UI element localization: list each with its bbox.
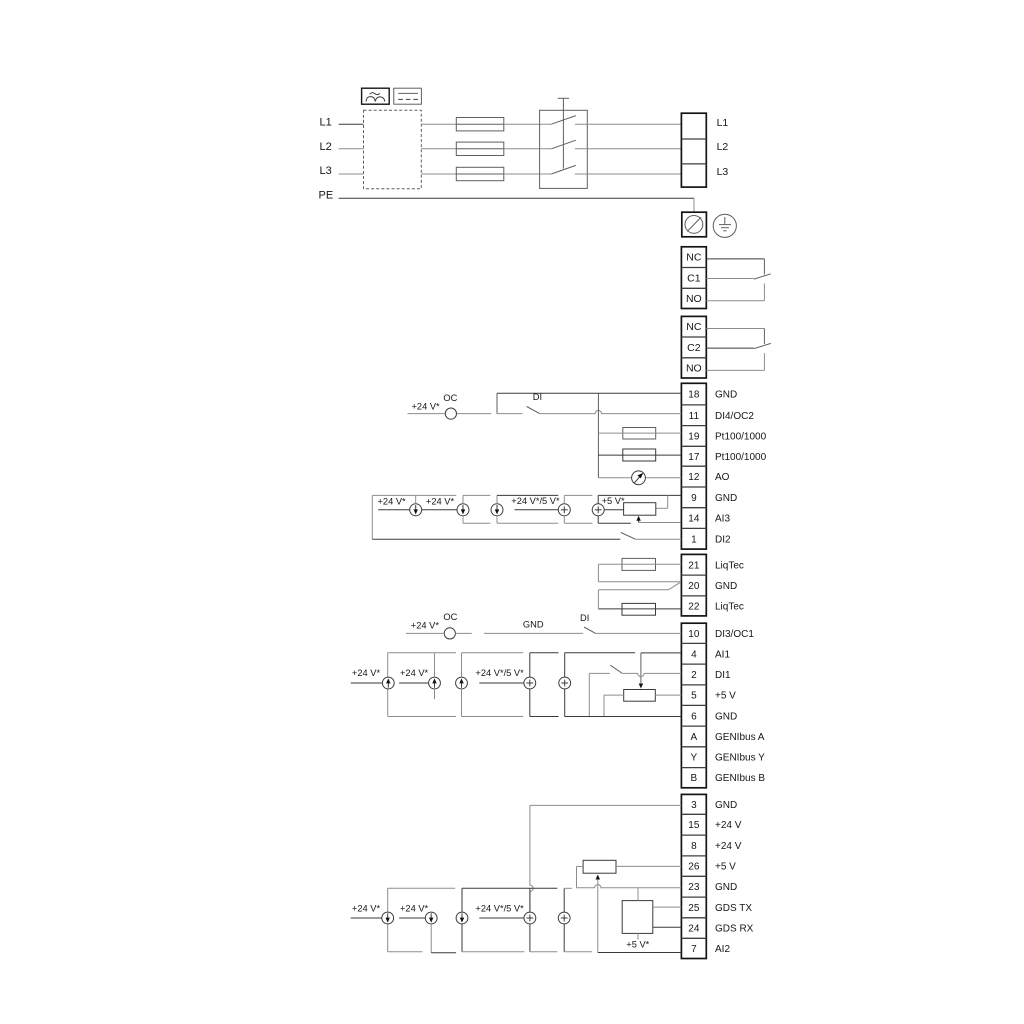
- svg-text:20: 20: [688, 581, 700, 592]
- svg-text:AI1: AI1: [715, 649, 730, 660]
- svg-text:L1: L1: [320, 117, 332, 129]
- svg-text:DI2: DI2: [715, 534, 731, 545]
- svg-text:+24 V*/5 V*: +24 V*/5 V*: [475, 668, 524, 678]
- svg-text:L1: L1: [717, 117, 729, 129]
- svg-text:22: 22: [688, 601, 700, 612]
- svg-text:NO: NO: [686, 293, 702, 305]
- svg-text:+5 V*: +5 V*: [602, 496, 625, 506]
- svg-text:+5 V: +5 V: [715, 862, 736, 873]
- svg-text:8: 8: [691, 841, 697, 852]
- svg-text:GENIbus B: GENIbus B: [715, 773, 765, 784]
- svg-text:+24 V: +24 V: [715, 820, 742, 831]
- svg-text:GND: GND: [523, 620, 544, 630]
- svg-text:9: 9: [691, 493, 697, 504]
- svg-text:3: 3: [691, 800, 697, 811]
- svg-text:21: 21: [688, 560, 700, 571]
- svg-text:+24 V*: +24 V*: [426, 496, 455, 506]
- svg-text:GND: GND: [715, 882, 737, 893]
- svg-text:+24 V*: +24 V*: [400, 668, 429, 678]
- svg-text:GND: GND: [715, 711, 737, 722]
- svg-text:10: 10: [688, 629, 700, 640]
- svg-text:NO: NO: [686, 362, 702, 374]
- svg-text:DI: DI: [533, 392, 542, 402]
- svg-text:GDS TX: GDS TX: [715, 903, 752, 914]
- svg-text:6: 6: [691, 711, 697, 722]
- svg-text:NC: NC: [686, 321, 702, 333]
- svg-text:DI4/OC2: DI4/OC2: [715, 411, 754, 422]
- svg-text:7: 7: [691, 944, 697, 955]
- svg-text:GND: GND: [715, 800, 737, 811]
- svg-text:Pt100/1000: Pt100/1000: [715, 431, 767, 442]
- svg-text:+24 V*: +24 V*: [378, 496, 407, 506]
- svg-text:GND: GND: [715, 390, 737, 401]
- svg-text:+5 V: +5 V: [715, 691, 736, 702]
- svg-text:+24 V: +24 V: [715, 841, 742, 852]
- svg-text:19: 19: [688, 431, 700, 442]
- svg-text:L3: L3: [320, 165, 332, 177]
- svg-text:DI3/OC1: DI3/OC1: [715, 629, 754, 640]
- svg-text:14: 14: [688, 514, 700, 525]
- svg-text:OC: OC: [443, 393, 457, 403]
- svg-text:L3: L3: [717, 166, 729, 178]
- svg-text:17: 17: [688, 452, 700, 463]
- svg-text:C2: C2: [687, 342, 701, 354]
- svg-text:2: 2: [691, 670, 697, 681]
- svg-text:GENIbus Y: GENIbus Y: [715, 753, 765, 764]
- svg-text:+24 V*/5 V*: +24 V*/5 V*: [475, 903, 524, 913]
- svg-text:5: 5: [691, 691, 697, 702]
- svg-text:NC: NC: [686, 252, 702, 264]
- svg-text:B: B: [691, 773, 698, 784]
- svg-text:AI2: AI2: [715, 944, 730, 955]
- svg-text:L2: L2: [320, 141, 332, 153]
- svg-text:DI1: DI1: [715, 670, 731, 681]
- svg-text:23: 23: [688, 882, 700, 893]
- svg-text:AO: AO: [715, 472, 730, 483]
- svg-text:+24 V*: +24 V*: [411, 620, 440, 630]
- svg-text:25: 25: [688, 903, 700, 914]
- svg-text:12: 12: [688, 472, 700, 483]
- svg-text:Y: Y: [691, 753, 698, 764]
- svg-text:1: 1: [691, 534, 697, 545]
- svg-text:A: A: [691, 732, 698, 743]
- svg-text:24: 24: [688, 924, 700, 935]
- svg-text:DI: DI: [580, 613, 589, 623]
- svg-text:PE: PE: [319, 190, 334, 202]
- svg-text:11: 11: [689, 411, 700, 422]
- svg-text:GND: GND: [715, 493, 737, 504]
- svg-text:LiqTec: LiqTec: [715, 601, 744, 612]
- svg-text:+24 V*: +24 V*: [352, 668, 381, 678]
- svg-text:Pt100/1000: Pt100/1000: [715, 452, 767, 463]
- svg-text:4: 4: [691, 649, 697, 660]
- svg-text:+24 V*: +24 V*: [352, 903, 381, 913]
- svg-text:+24 V*: +24 V*: [400, 903, 429, 913]
- svg-text:GDS RX: GDS RX: [715, 924, 754, 935]
- svg-text:LiqTec: LiqTec: [715, 560, 744, 571]
- svg-text:+24 V*/5 V*: +24 V*/5 V*: [511, 496, 560, 506]
- svg-text:GENIbus A: GENIbus A: [715, 732, 765, 743]
- svg-text:AI3: AI3: [715, 514, 730, 525]
- svg-text:26: 26: [688, 862, 700, 873]
- svg-text:18: 18: [688, 390, 700, 401]
- svg-text:+5 V*: +5 V*: [626, 939, 649, 949]
- svg-text:L2: L2: [717, 141, 729, 153]
- svg-text:+24 V*: +24 V*: [412, 401, 441, 411]
- svg-text:15: 15: [688, 820, 700, 831]
- svg-text:C1: C1: [687, 272, 701, 284]
- svg-text:OC: OC: [443, 612, 457, 622]
- svg-text:GND: GND: [715, 581, 737, 592]
